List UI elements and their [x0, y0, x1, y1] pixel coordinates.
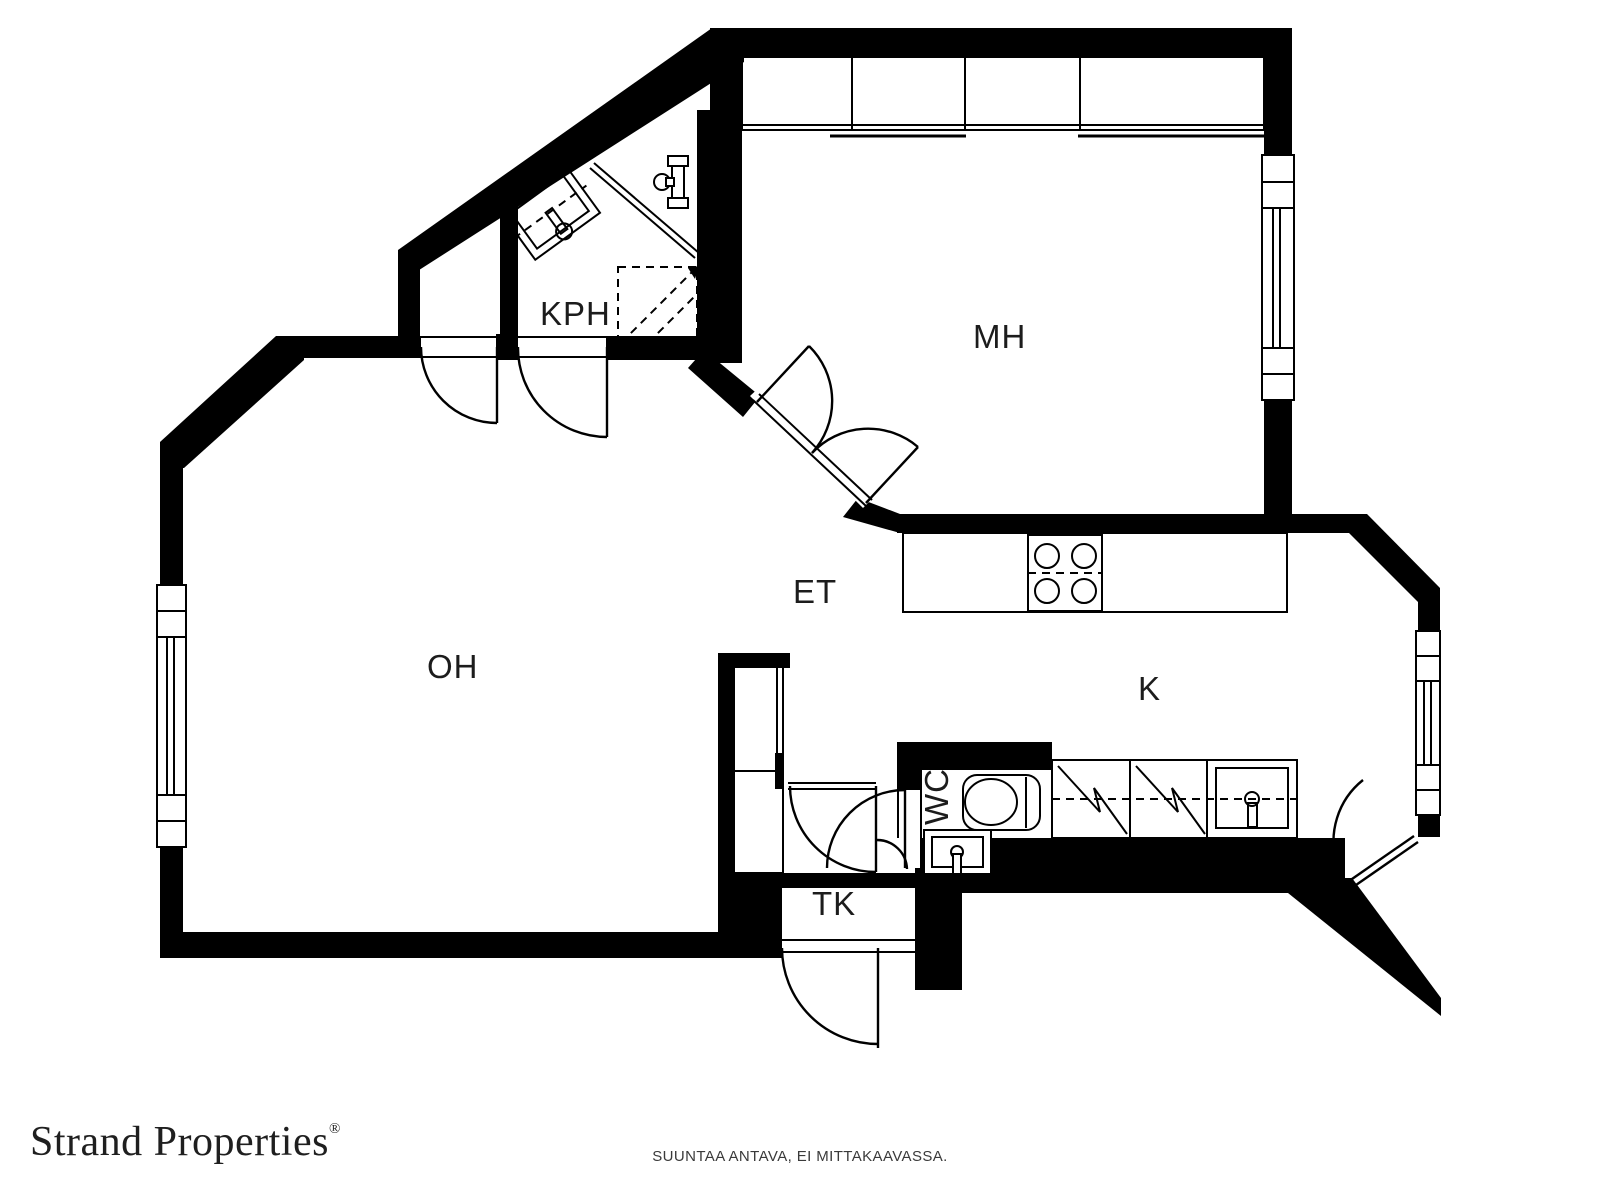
kitchen-island-counter [903, 533, 1287, 612]
door-hall [790, 786, 876, 872]
floor-plan-page: KPH MH ET OH K WC TK Strand Properties® … [0, 0, 1600, 1200]
wardrobe [742, 57, 1264, 136]
sliding-door-stop [775, 753, 784, 789]
room-label-wc: WC [918, 768, 955, 825]
stove-icon [1028, 535, 1102, 611]
floor-plan-drawing: KPH MH ET OH K WC TK [0, 0, 1600, 1200]
openings [421, 334, 920, 955]
shower-area [618, 266, 699, 345]
room-label-kph: KPH [540, 295, 611, 332]
shower-mixer-icon [654, 156, 688, 208]
window-oh [157, 585, 186, 847]
toilet-icon [963, 775, 1040, 830]
window-k [1416, 631, 1440, 815]
registered-mark: ® [329, 1121, 341, 1137]
room-label-et: ET [793, 573, 837, 610]
room-label-k: K [1138, 670, 1161, 707]
hall-closet [735, 668, 784, 873]
wc-sink-icon [924, 830, 991, 874]
disclaimer-text: SUUNTAA ANTAVA, EI MITTAKAAVASSA. [0, 1148, 1600, 1165]
door-entry [782, 948, 878, 1048]
walls [160, 28, 1441, 1016]
window-mh [1262, 155, 1294, 400]
room-label-tk: TK [812, 885, 856, 922]
door-balcony [1334, 780, 1418, 885]
room-label-mh: MH [973, 318, 1026, 355]
kitchen-counter [1052, 760, 1297, 838]
room-label-oh: OH [427, 648, 479, 685]
door-wc [827, 790, 907, 869]
